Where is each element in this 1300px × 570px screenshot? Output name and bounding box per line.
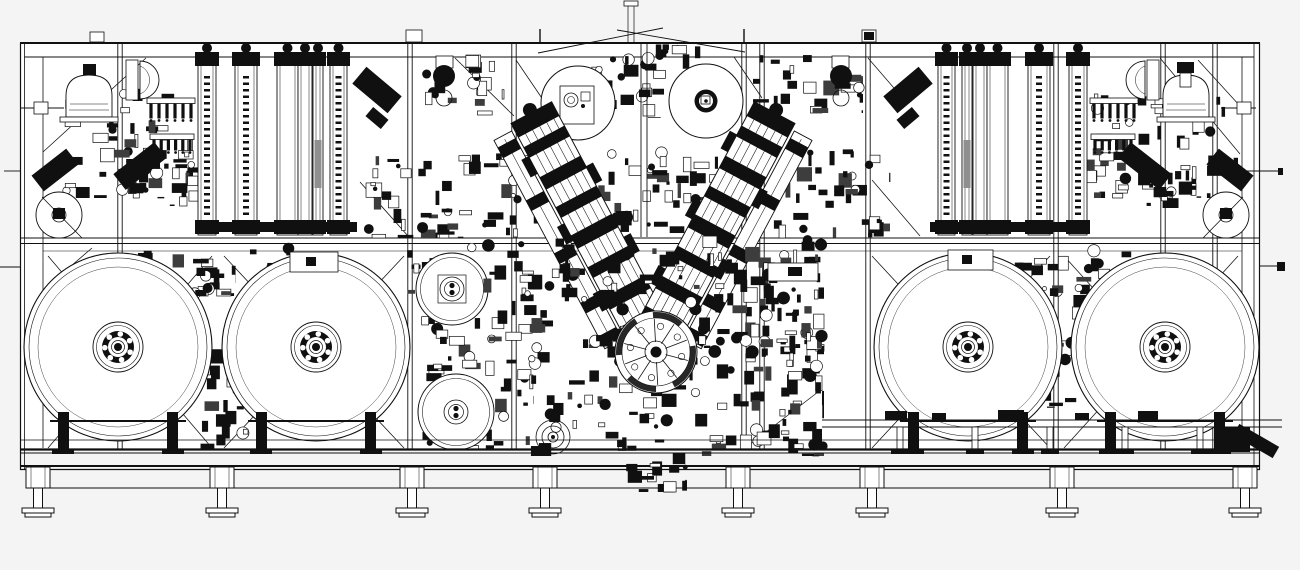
process-reel-2 xyxy=(418,374,494,450)
cad-viewport xyxy=(0,0,1300,570)
machine-assembly-drawing xyxy=(0,0,1300,570)
unwind-reel-1 xyxy=(24,253,212,441)
unwind-reel-4 xyxy=(1071,253,1259,441)
process-reel-1 xyxy=(416,253,488,325)
film-reel-right xyxy=(669,64,743,138)
unwind-reel-2 xyxy=(222,253,410,441)
indexing-turret xyxy=(615,311,697,393)
